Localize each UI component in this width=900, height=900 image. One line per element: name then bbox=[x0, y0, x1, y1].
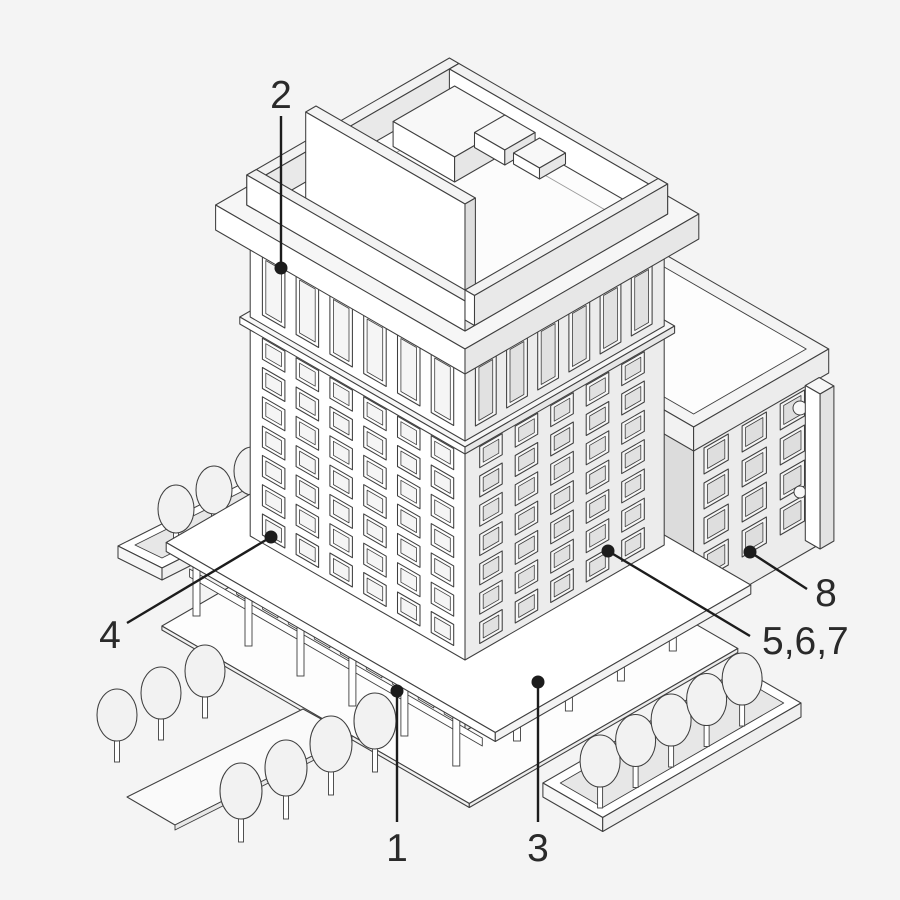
callout-3-label: 3 bbox=[527, 827, 549, 870]
callout-4-label: 4 bbox=[99, 614, 121, 657]
annex-fin-wall bbox=[805, 378, 834, 550]
building-diagram: 2 4 1 3 5,6,7 8 bbox=[0, 0, 900, 900]
callout-1-dot bbox=[391, 685, 404, 698]
callout-3-dot bbox=[532, 676, 545, 689]
callout-1-label: 1 bbox=[386, 827, 408, 870]
callout-2-dot bbox=[275, 262, 288, 275]
callout-4-dot bbox=[265, 531, 278, 544]
callout-2-label: 2 bbox=[270, 74, 292, 117]
callout-8-dot bbox=[744, 546, 757, 559]
callout-5-6-7-dot bbox=[602, 545, 615, 558]
callout-8-label: 8 bbox=[815, 572, 837, 615]
callout-5-6-7-label: 5,6,7 bbox=[762, 620, 849, 663]
building-diagram-page: 2 4 1 3 5,6,7 8 bbox=[0, 0, 900, 900]
